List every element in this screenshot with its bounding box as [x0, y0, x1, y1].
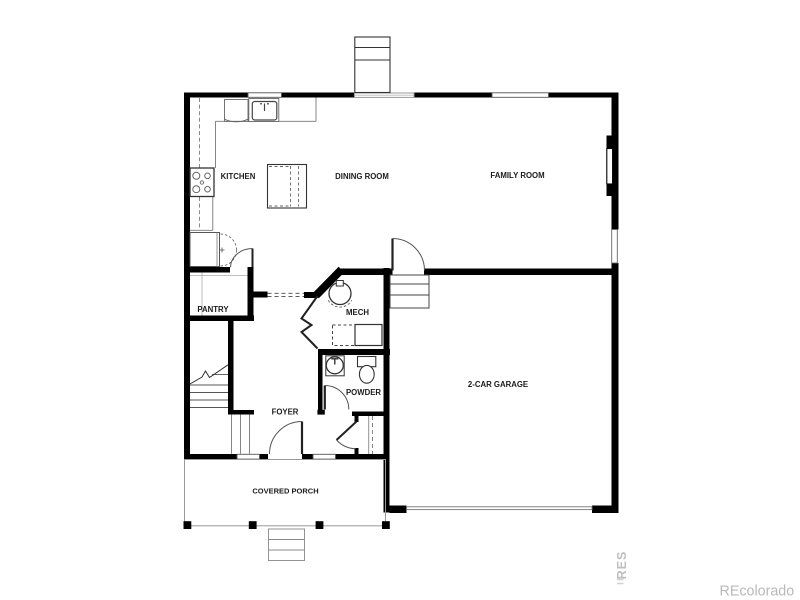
svg-text:POWDER: POWDER	[346, 388, 381, 397]
svg-text:MECH: MECH	[346, 308, 369, 317]
svg-text:REcolorado: REcolorado	[720, 584, 795, 600]
svg-text:DINING ROOM: DINING ROOM	[335, 172, 389, 181]
svg-text:FOYER: FOYER	[272, 408, 299, 417]
svg-text:KITCHEN: KITCHEN	[221, 172, 256, 181]
svg-text:RES: RES	[615, 551, 629, 580]
svg-text:2-CAR GARAGE: 2-CAR GARAGE	[468, 380, 528, 389]
svg-text:FAMILY ROOM: FAMILY ROOM	[490, 171, 544, 180]
svg-text:COVERED PORCH: COVERED PORCH	[252, 486, 318, 495]
svg-text:PANTRY: PANTRY	[197, 305, 229, 314]
